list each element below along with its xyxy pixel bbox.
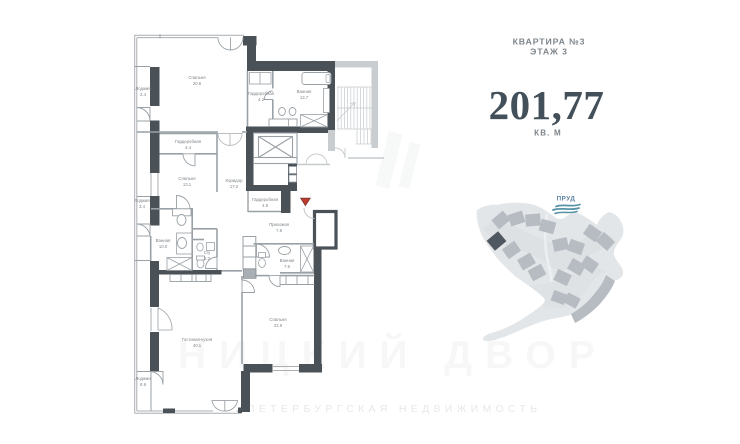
svg-text:201,77: 201,77 — [489, 82, 605, 128]
svg-text:Лоджия: Лоджия — [134, 198, 150, 203]
svg-text:10.0: 10.0 — [159, 244, 168, 249]
svg-text:Лоджия: Лоджия — [135, 86, 151, 91]
svg-text:22.9: 22.9 — [274, 323, 283, 328]
svg-text:Ванная: Ванная — [280, 258, 295, 263]
svg-text:ЭТАЖ 3: ЭТАЖ 3 — [530, 47, 568, 57]
svg-text:4.4: 4.4 — [185, 145, 192, 150]
svg-text:Прихожая: Прихожая — [269, 222, 290, 227]
svg-text:2.3: 2.3 — [204, 256, 211, 261]
svg-text:С/у: С/у — [204, 250, 211, 255]
svg-text:17.2: 17.2 — [230, 184, 239, 189]
svg-text:Спальня: Спальня — [188, 75, 206, 80]
svg-text:ПРУД: ПРУД — [557, 196, 576, 203]
svg-text:Ванная: Ванная — [297, 89, 312, 94]
svg-text:4.9: 4.9 — [262, 203, 269, 208]
svg-text:Ванная: Ванная — [156, 238, 171, 243]
svg-text:КВАРТИРА №3: КВАРТИРА №3 — [513, 37, 586, 47]
svg-text:КВ. М: КВ. М — [534, 129, 562, 138]
svg-text:Гардеробная: Гардеробная — [252, 197, 279, 202]
svg-text:13.7: 13.7 — [300, 95, 309, 100]
svg-text:7.6: 7.6 — [284, 264, 291, 269]
svg-text:4.2: 4.2 — [258, 97, 265, 102]
svg-text:2.4: 2.4 — [140, 92, 147, 97]
svg-text:7.8: 7.8 — [276, 228, 283, 233]
svg-text:ПЕТЕРБУРГСКАЯ НЕДВИЖИМОСТЬ: ПЕТЕРБУРГСКАЯ НЕДВИЖИМОСТЬ — [247, 403, 541, 415]
svg-text:13.1: 13.1 — [183, 182, 192, 187]
svg-text:Гардеробная: Гардеробная — [248, 91, 275, 96]
svg-text:3.4: 3.4 — [139, 204, 146, 209]
svg-text:Гардеробная: Гардеробная — [175, 139, 202, 144]
svg-text:40.1: 40.1 — [193, 343, 202, 348]
svg-text:Спальня: Спальня — [269, 317, 287, 322]
svg-text:Гостиная-кухня: Гостиная-кухня — [182, 337, 213, 342]
svg-text:20.6: 20.6 — [193, 81, 202, 86]
svg-text:8.9: 8.9 — [140, 382, 147, 387]
svg-text:Лоджия: Лоджия — [135, 376, 151, 381]
svg-text:Спальня: Спальня — [178, 176, 196, 181]
svg-text:Коридор: Коридор — [226, 178, 244, 183]
